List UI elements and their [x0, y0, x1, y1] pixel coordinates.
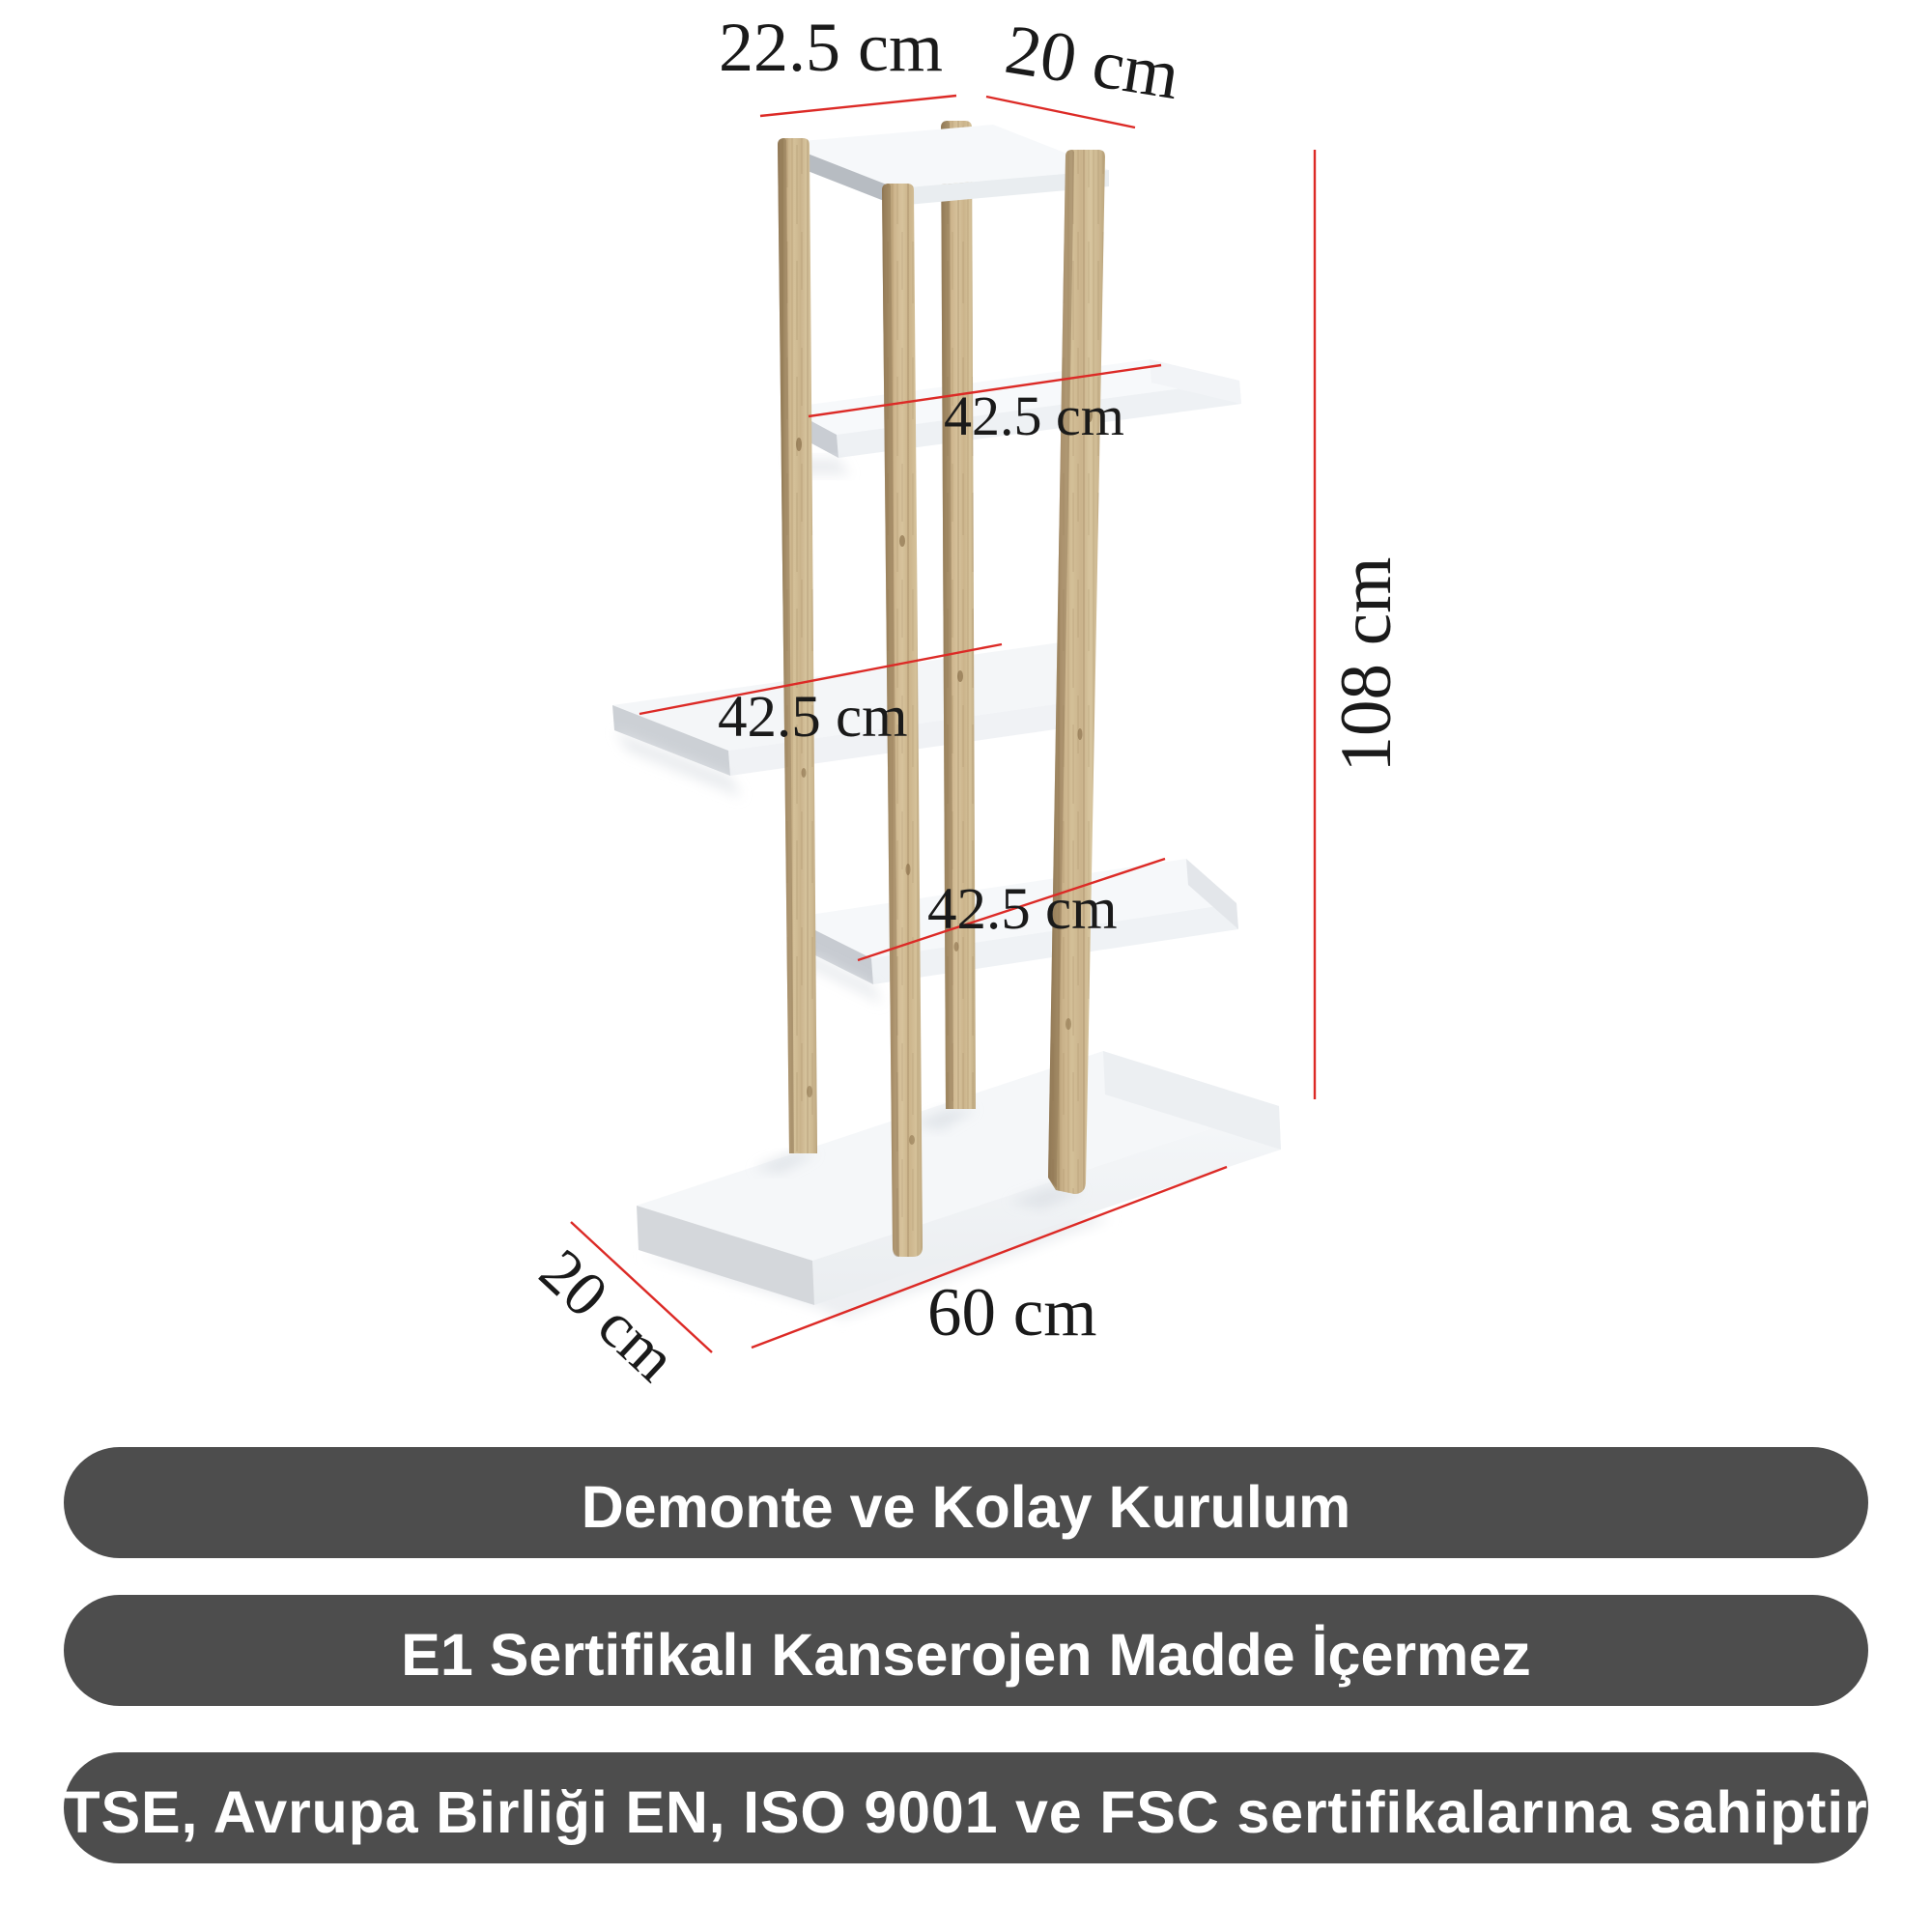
svg-text:22.5 cm: 22.5 cm	[719, 9, 943, 86]
svg-text:42.5 cm: 42.5 cm	[927, 877, 1118, 942]
svg-text:108 cm: 108 cm	[1326, 557, 1406, 773]
svg-text:TSE, Avrupa Birliği EN, ISO 90: TSE, Avrupa Birliği EN, ISO 9001 ve FSC …	[64, 1779, 1867, 1845]
svg-text:42.5 cm: 42.5 cm	[718, 685, 908, 750]
svg-text:Demonte ve Kolay Kurulum: Demonte ve Kolay Kurulum	[582, 1474, 1351, 1540]
svg-text:60 cm: 60 cm	[927, 1275, 1097, 1350]
svg-text:42.5 cm: 42.5 cm	[944, 384, 1124, 447]
svg-text:E1 Sertifikalı Kanserojen Madd: E1 Sertifikalı Kanserojen Madde İçermez	[401, 1622, 1531, 1688]
